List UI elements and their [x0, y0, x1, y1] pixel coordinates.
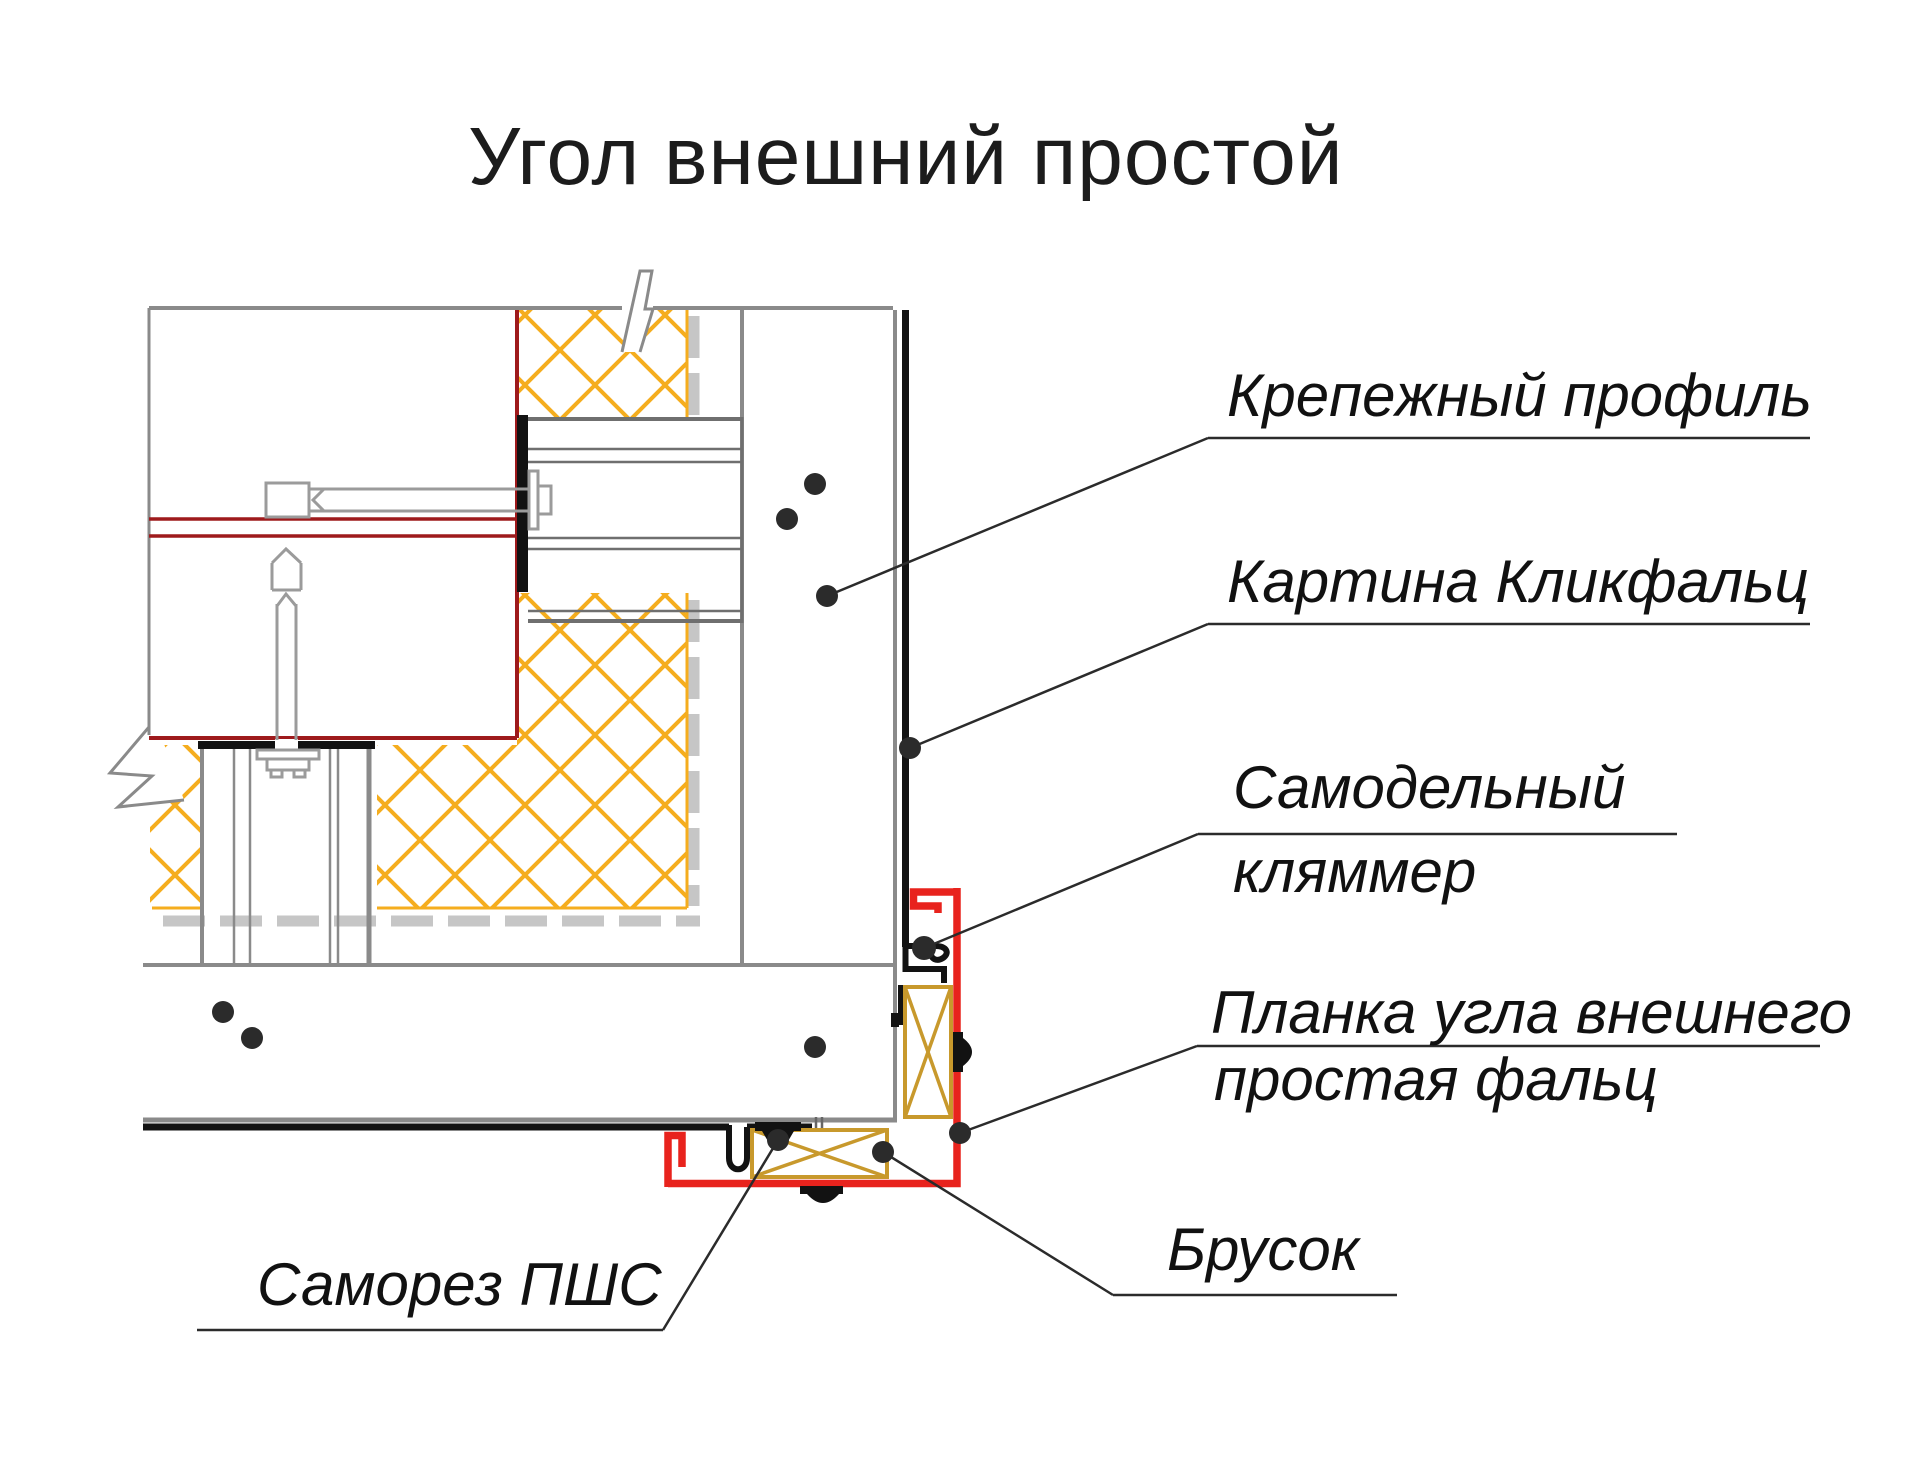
leader-dot — [872, 1141, 894, 1163]
label-corner-strip-line1: Планка угла внешнего — [1211, 983, 1852, 1043]
leader-dot — [899, 737, 921, 759]
stud-column — [202, 749, 369, 963]
leader-dot — [816, 585, 838, 607]
leader-dot — [912, 936, 936, 960]
reference-dot — [776, 508, 798, 530]
diagram-page: Угол внешний простой Крепежный профиль К… — [0, 0, 1920, 1470]
screw-right — [953, 1032, 972, 1072]
label-homemade-clamp-line1: Самодельный — [1233, 758, 1625, 818]
leader-dot — [767, 1129, 789, 1151]
label-homemade-clamp-line2: кляммер — [1233, 842, 1476, 902]
label-wood-block: Брусок — [1167, 1220, 1359, 1280]
clickfalz-panel-bottom — [143, 1125, 812, 1169]
leader-dot — [949, 1122, 971, 1144]
reference-dot — [804, 473, 826, 495]
profile-mount-bar — [517, 415, 528, 592]
label-klickfalz-panel: Картина Кликфальц — [1227, 552, 1809, 612]
fastening-profile — [528, 417, 742, 623]
reference-dot — [804, 1036, 826, 1058]
screw-bottom — [800, 1186, 843, 1203]
drawing-title: Угол внешний простой — [468, 110, 1344, 204]
label-fastening-profile: Крепежный профиль — [1227, 366, 1812, 426]
label-corner-strip-line2: простая фальц — [1214, 1050, 1658, 1110]
reference-dot — [212, 1001, 234, 1023]
wood-block-vertical — [905, 987, 951, 1117]
interior-finish-lines — [149, 310, 517, 738]
reference-dot — [241, 1027, 263, 1049]
corner-detail-drawing — [0, 0, 1920, 1470]
label-screw: Саморез ПШС — [257, 1255, 662, 1315]
insulation-hatch — [150, 310, 687, 908]
